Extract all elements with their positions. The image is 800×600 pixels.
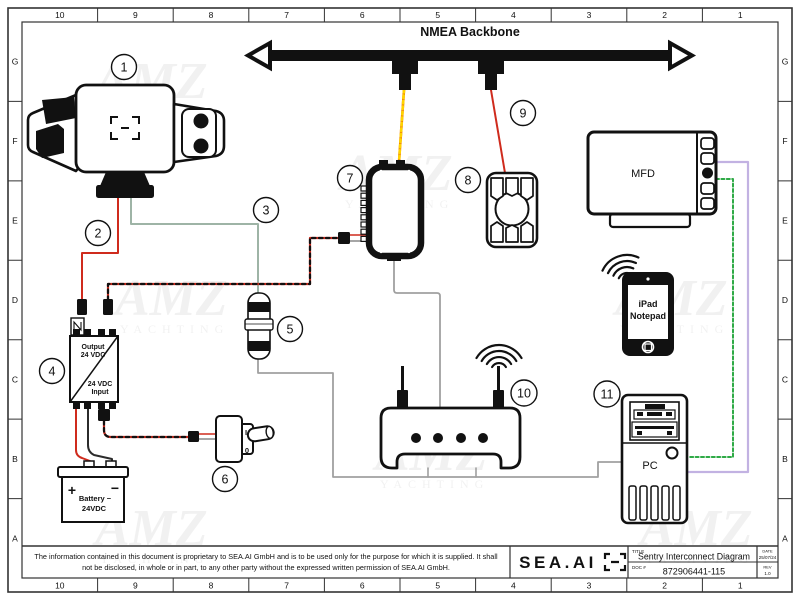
grid-col-label: 1 [738, 581, 743, 591]
pc-power-button [667, 448, 678, 459]
callout-11: 11 [594, 381, 620, 407]
nmea-backbone: NMEA Backbone [248, 25, 692, 90]
grid-row-label: F [782, 136, 787, 146]
grid-col-label: 4 [511, 581, 516, 591]
cad-sheet: AMZ YACHTING AMZ YACHTING AMZ YACHTING A… [0, 0, 800, 600]
switch-off-mark: 0 [245, 446, 249, 455]
callout-7: 7 [338, 166, 363, 191]
document-title: Sentry Interconnect Diagram [638, 552, 750, 562]
mfd-power-button [702, 168, 713, 179]
doc-number-label: DOC # [632, 565, 646, 570]
backbone-bar [266, 50, 674, 61]
pc-tower: PC [622, 395, 687, 523]
converter-input-voltage: 24 VDC [88, 381, 113, 388]
grid-col-label: 6 [360, 10, 365, 20]
mfd-display: MFD [588, 132, 716, 227]
grid-ruler-bottom: 10 9 8 7 6 5 4 3 2 1 [55, 581, 743, 591]
box-frame [369, 167, 421, 256]
wire-box-to-router [394, 261, 440, 408]
callout-9: 9 [511, 101, 536, 126]
svg-text:10: 10 [517, 387, 531, 401]
grid-ruler-top: 10 9 8 7 6 5 4 3 2 1 [55, 10, 743, 20]
svg-text:11: 11 [601, 388, 614, 402]
tablet-camera-dot [646, 277, 649, 280]
callout-1: 1 [112, 55, 137, 80]
backbone-arrow-right [670, 43, 692, 68]
backbone-tee-connectors [392, 61, 504, 90]
grid-row-label: D [782, 295, 788, 305]
pc-drive-details [637, 412, 672, 416]
svg-text:8: 8 [465, 174, 472, 188]
battery-plus-sign: + [68, 482, 76, 498]
box-bottom-lug [387, 255, 401, 261]
backbone-label: NMEA Backbone [420, 25, 520, 39]
date-value: 25/07/24 [759, 555, 777, 560]
camera-mount [100, 172, 150, 186]
camera-sensor-top [194, 114, 209, 129]
converter-output-label: Output [82, 344, 106, 351]
rev-label: REV [763, 565, 772, 570]
watermark: AMZ YACHTING [112, 270, 229, 336]
camera-mount-base [96, 185, 154, 198]
rev-value: 1.0 [764, 571, 771, 576]
pc-vents [629, 486, 680, 520]
grid-col-label: 5 [435, 581, 440, 591]
wire-converter-to-switch-twisted [104, 421, 188, 437]
grid-ruler-left: G F E D C B A [12, 57, 19, 544]
grid-col-label: 3 [587, 581, 592, 591]
battery-minus-sign: − [111, 480, 119, 496]
grid-col-label: 10 [55, 581, 65, 591]
disclaimer-line-1: The information contained in this docume… [34, 552, 498, 561]
converter-output-voltage: 24 VDC [81, 352, 106, 359]
mfd-stand [610, 214, 690, 227]
battery-top-plate [58, 467, 128, 477]
pc-drive-bar [645, 404, 665, 409]
pc-label: PC [642, 460, 657, 472]
grid-row-label: B [782, 454, 788, 464]
callout-3: 3 [254, 198, 279, 223]
grid-row-label: B [12, 454, 18, 464]
date-label: DATE [762, 549, 773, 554]
callout-4: 4 [40, 359, 65, 384]
connector-band-bottom [248, 341, 270, 351]
svg-text:5: 5 [287, 323, 294, 337]
disclaimer-line-2: not be disclosed, in whole or in part, t… [82, 563, 450, 572]
router-antennas [397, 366, 504, 410]
grid-row-label: A [782, 533, 788, 543]
svg-text:AMZ: AMZ [112, 270, 228, 327]
converter-input-label: Input [91, 389, 109, 396]
svg-text:9: 9 [520, 107, 527, 121]
converter-terminals-top [73, 329, 116, 336]
grid-col-label: 6 [360, 581, 365, 591]
doc-number-value: 872906441-115 [663, 567, 725, 577]
svg-text:YACHTING: YACHTING [380, 477, 489, 491]
switch-on-mark: I [245, 428, 247, 437]
grid-row-label: C [782, 374, 788, 384]
grid-col-label: 7 [284, 10, 289, 20]
grid-row-label: F [12, 136, 17, 146]
grid-col-label: 2 [662, 10, 667, 20]
cable-plug [103, 299, 113, 315]
cable-plug [188, 431, 199, 442]
grid-row-label: C [12, 374, 18, 384]
wire-nmea-drop-red [491, 90, 505, 173]
backbone-arrow-left [248, 43, 270, 68]
grid-row-label: E [782, 216, 788, 226]
svg-text:1: 1 [121, 61, 128, 75]
grid-row-label: E [12, 216, 18, 226]
company-logo-text: SEA.AI [519, 553, 597, 572]
grid-col-label: 1 [738, 10, 743, 20]
switch-body [216, 416, 242, 462]
grid-row-label: D [12, 295, 18, 305]
svg-text:YACHTING: YACHTING [120, 322, 229, 336]
callout-6: 6 [213, 467, 238, 492]
cable-plug [77, 299, 87, 315]
callout-10: 10 [511, 380, 537, 406]
connector-band-top [248, 302, 270, 312]
logo-bracket-icon [605, 554, 625, 570]
power-converter: Output 24 VDC 24 VDC Input [70, 299, 118, 421]
svg-text:2: 2 [95, 227, 102, 241]
callout-2: 2 [86, 221, 111, 246]
battery-voltage: 24VDC [82, 504, 107, 513]
keypad [487, 173, 537, 247]
grid-col-label: 7 [284, 581, 289, 591]
grid-col-label: 3 [587, 10, 592, 20]
grid-ruler-right: G F E D C B A [782, 57, 789, 544]
inline-connector [245, 293, 273, 359]
camera-sensor-bottom [194, 139, 209, 154]
tablet-label-2: Notepad [630, 311, 666, 321]
tablet-label-1: iPad [638, 299, 657, 309]
grid-col-label: 8 [209, 581, 214, 591]
wifi-router [381, 345, 522, 468]
cable-plug [98, 409, 110, 421]
mfd-label: MFD [631, 168, 655, 180]
grid-row-label: A [12, 533, 18, 543]
svg-text:4: 4 [49, 365, 56, 379]
converter-terminals-bottom [73, 402, 116, 409]
grid-col-label: 9 [133, 581, 138, 591]
callout-5: 5 [278, 317, 303, 342]
battery: + − Battery − 24VDC [58, 461, 128, 522]
grid-col-label: 8 [209, 10, 214, 20]
connector-flange [245, 319, 273, 330]
wifi-icon [477, 345, 522, 367]
grid-col-label: 4 [511, 10, 516, 20]
power-switch: I 0 [188, 416, 275, 462]
battery-label: Battery − [79, 494, 112, 503]
wire-converter-to-switch-overlay [104, 421, 188, 437]
grid-col-label: 5 [435, 10, 440, 20]
grid-col-label: 2 [662, 581, 667, 591]
grid-row-label: G [12, 57, 19, 67]
schematic-canvas: AMZ YACHTING AMZ YACHTING AMZ YACHTING A… [0, 0, 800, 600]
cable-plug [338, 232, 350, 244]
svg-text:3: 3 [263, 204, 270, 218]
grid-col-label: 10 [55, 10, 65, 20]
svg-text:7: 7 [347, 172, 354, 186]
grid-col-label: 9 [133, 10, 138, 20]
grid-row-label: G [782, 57, 789, 67]
svg-text:6: 6 [222, 473, 229, 487]
callout-8: 8 [456, 168, 481, 193]
